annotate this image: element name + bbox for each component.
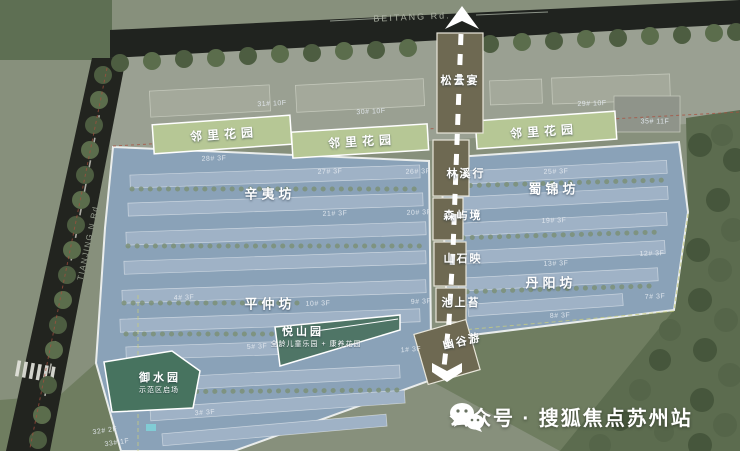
- watermark: 公众号 · 搜狐焦点苏州站: [449, 402, 693, 431]
- zone-label-danyang: 丹阳坊: [525, 273, 576, 292]
- building-label: 10# 3F: [305, 300, 330, 308]
- building-label: 3# 3F: [195, 409, 216, 417]
- building-label: 25# 3F: [543, 168, 568, 176]
- axis-node-chishang: 池上苔: [442, 294, 481, 310]
- building-label: 4# 3F: [174, 294, 195, 302]
- building-label: 5# 3F: [247, 343, 268, 351]
- building-label: 35# 11F: [641, 119, 670, 126]
- building-label: 20# 3F: [406, 209, 431, 217]
- park-subtitle-yueshan: 全龄儿童乐园 + 康养花园: [271, 339, 362, 349]
- park-label-yueshan: 悦山园: [282, 323, 324, 339]
- wechat-icon: [449, 402, 485, 432]
- building-label: 8# 3F: [550, 312, 571, 320]
- site-plan-art: [0, 0, 740, 451]
- building-label: 27# 3F: [317, 168, 342, 176]
- axis-node-songyun: 松云宴: [441, 72, 480, 88]
- building-label: 13# 3F: [543, 260, 568, 268]
- park-label-yushui: 御水园: [139, 369, 181, 385]
- building-label: 21# 3F: [322, 210, 347, 218]
- park-subtitle-yushui: 示范区启场: [139, 385, 179, 395]
- building-label: 19# 3F: [541, 217, 566, 225]
- building-label: 9# 3F: [411, 298, 432, 306]
- building-label: 7# 3F: [645, 293, 666, 301]
- northwest-green: [0, 0, 112, 60]
- building-label: 1# 3F: [401, 346, 422, 354]
- building-label: 28# 3F: [201, 155, 226, 163]
- zone-label-pingzhong: 平仲坊: [244, 294, 295, 313]
- zone-label-xinyi: 辛夷坊: [244, 184, 295, 203]
- building-label: 12# 3F: [639, 250, 664, 258]
- zone-label-shujin: 蜀锦坊: [528, 179, 579, 198]
- axis-node-shanshi: 山石映: [444, 250, 483, 266]
- axis-node-senyu: 森屿境: [444, 207, 483, 223]
- site-plan: BEITANG Rd. TIANJING N Rd 松云宴 林溪行 森屿境 山石…: [0, 0, 740, 451]
- building-label: 29# 10F: [577, 100, 606, 108]
- watermark-text: 公众号 · 搜狐焦点苏州站: [449, 402, 693, 431]
- axis-node-linxi: 林溪行: [447, 165, 486, 181]
- building-label: 26# 3F: [405, 168, 430, 176]
